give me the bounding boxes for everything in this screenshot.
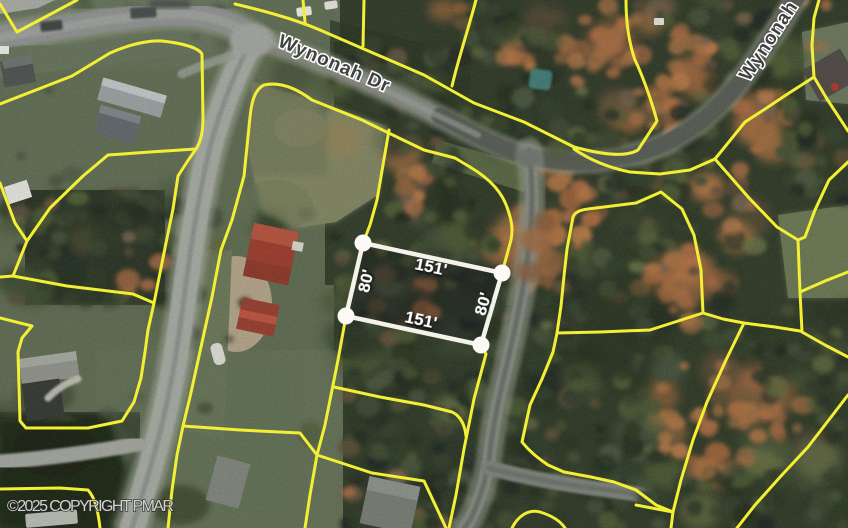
svg-text:©2025 COPYRIGHT PMAR: ©2025 COPYRIGHT PMAR: [7, 498, 173, 515]
